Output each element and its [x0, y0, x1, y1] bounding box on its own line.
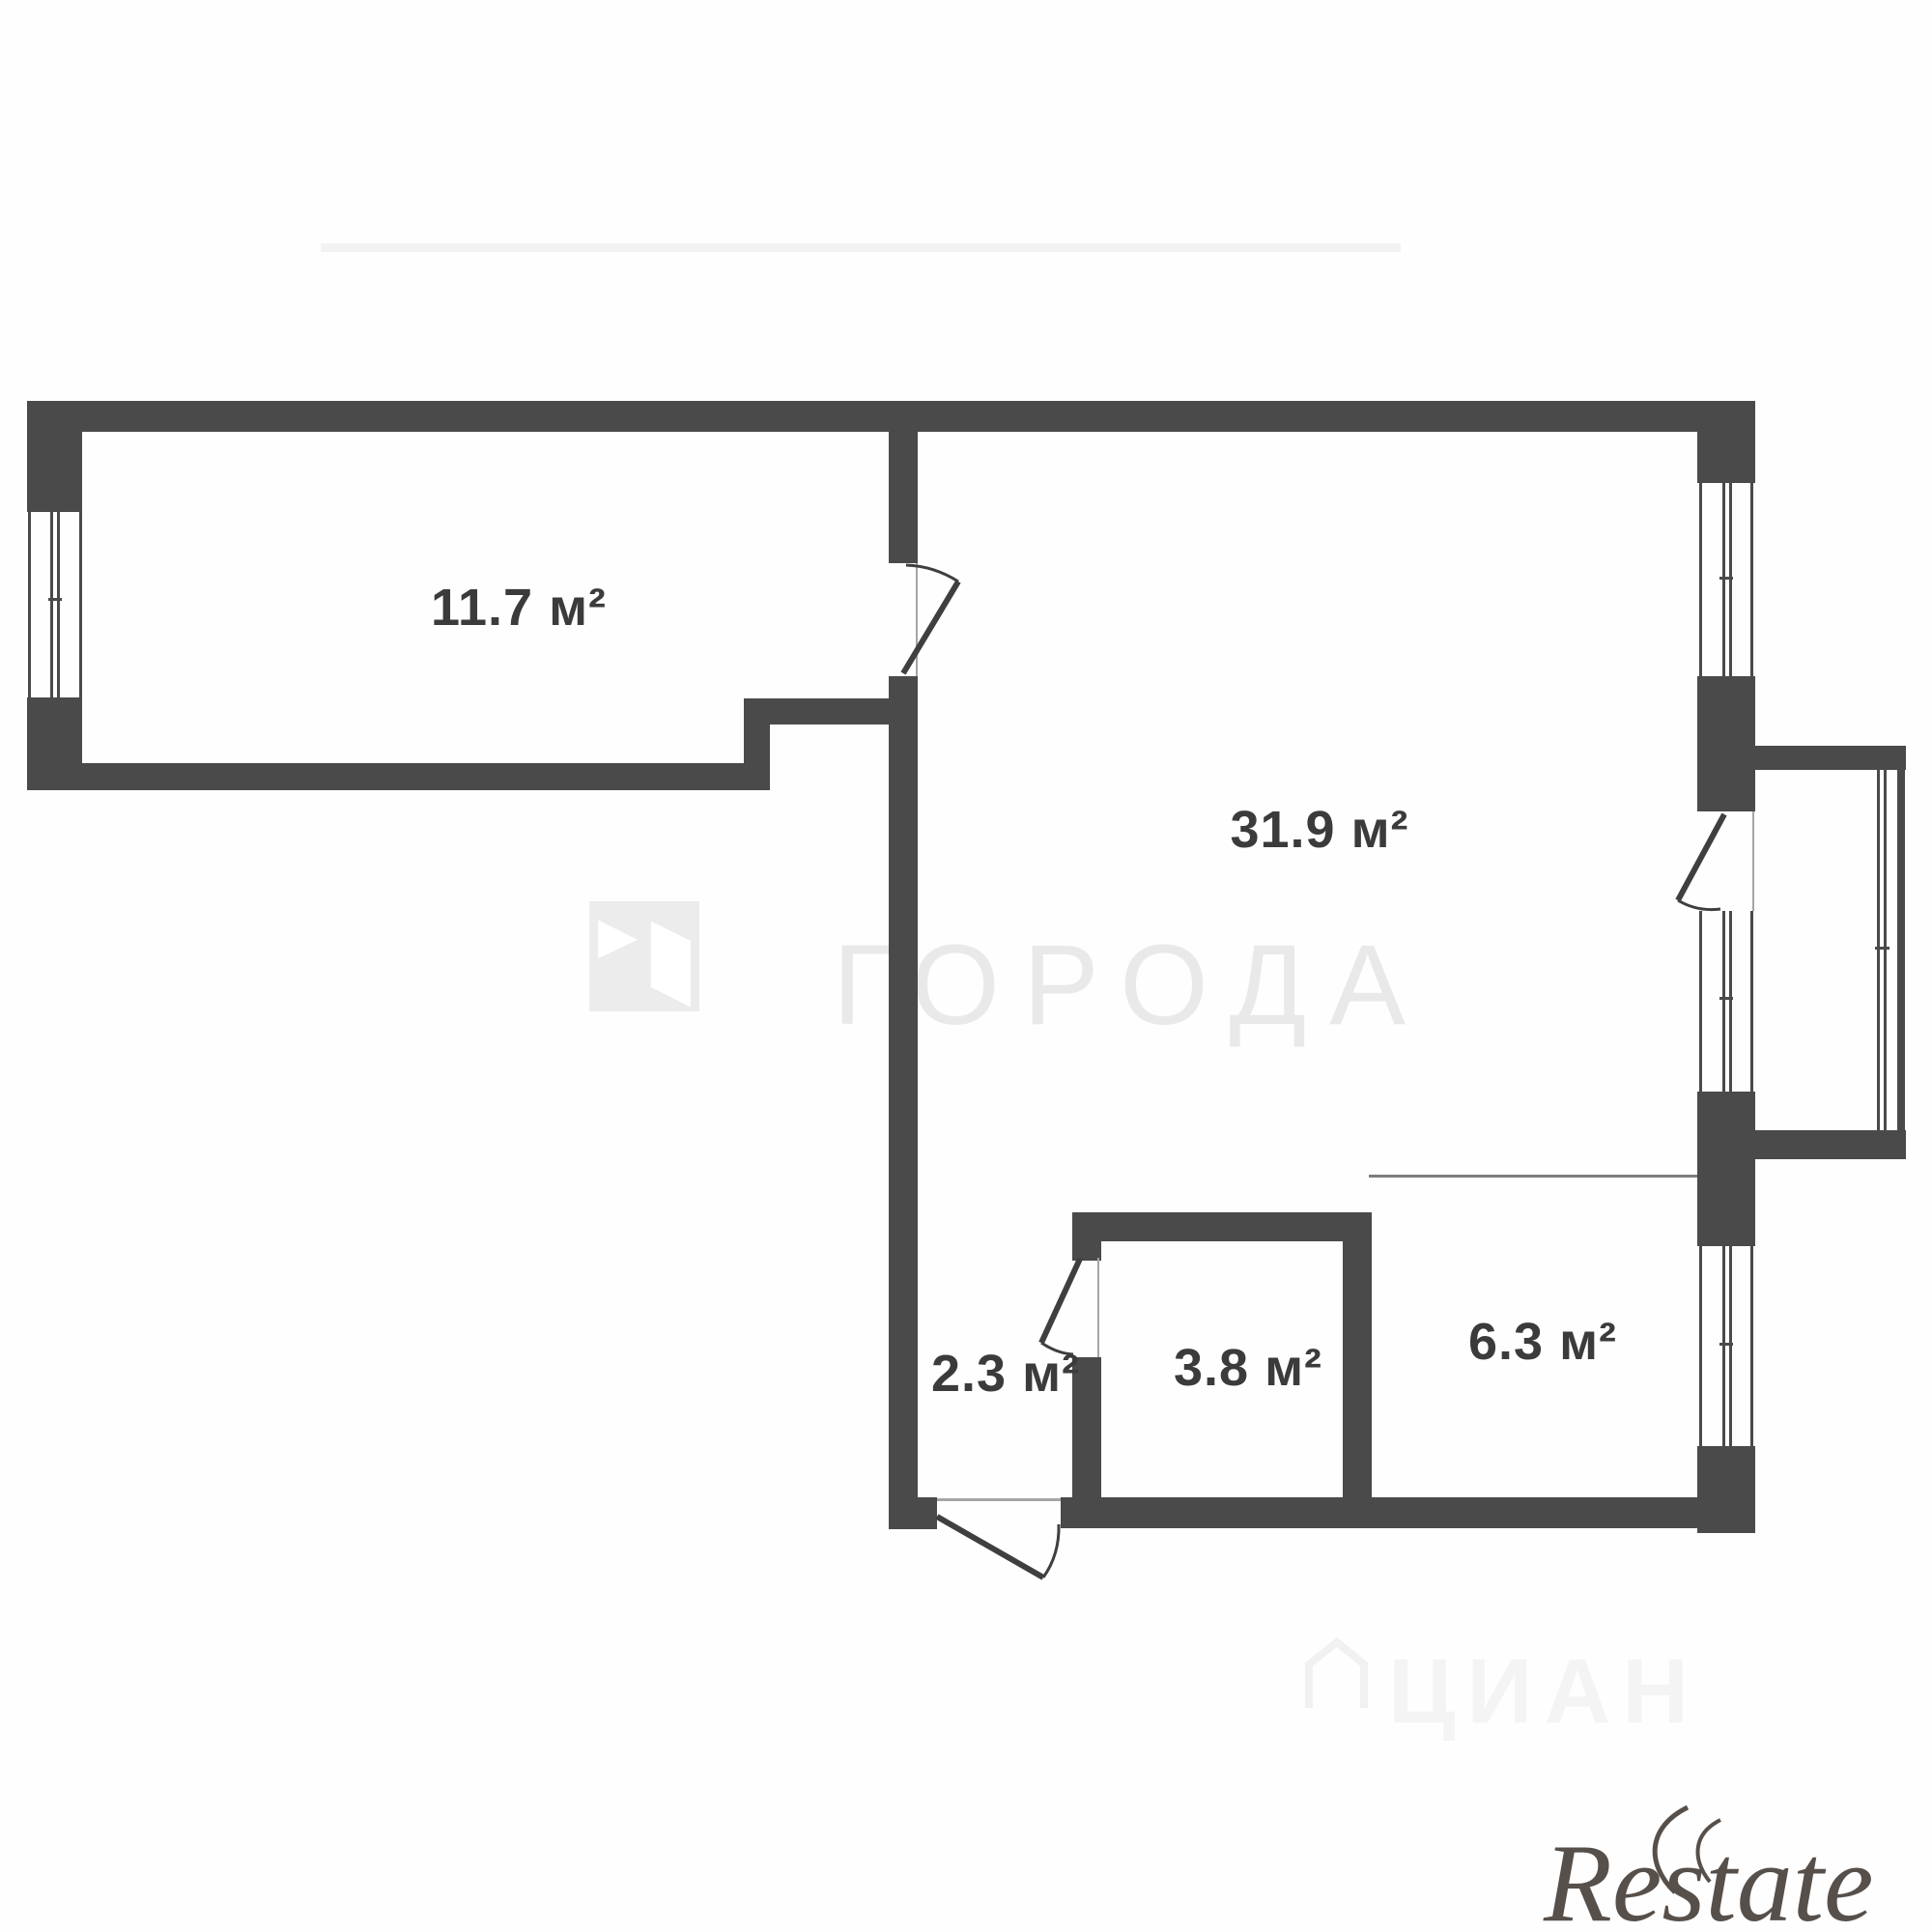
door-leaf-bathroom [1041, 1259, 1080, 1343]
room-label-hallway: 2.3 м² [931, 1344, 1080, 1404]
door-arc-entrance [1043, 1524, 1059, 1577]
restate-logo-text: Restate [1544, 1820, 1873, 1932]
door-leaf-balcony [1678, 814, 1724, 900]
door-arc-balcony [1678, 900, 1720, 910]
portal-house-icon [1309, 1642, 1364, 1708]
room-label-living: 31.9 м² [1230, 800, 1408, 860]
room-label-kitchen: 6.3 м² [1468, 1312, 1617, 1372]
door-swing-overlay [0, 0, 1932, 1932]
room-label-bathroom: 3.8 м² [1174, 1338, 1322, 1398]
floor-plan-canvas: ГОРОДА ЦИАН [0, 0, 1932, 1932]
door-arc-living [906, 565, 958, 582]
room-label-room1: 11.7 м² [431, 578, 607, 638]
door-leaf-living [903, 582, 958, 673]
door-leaf-entrance [937, 1517, 1043, 1577]
